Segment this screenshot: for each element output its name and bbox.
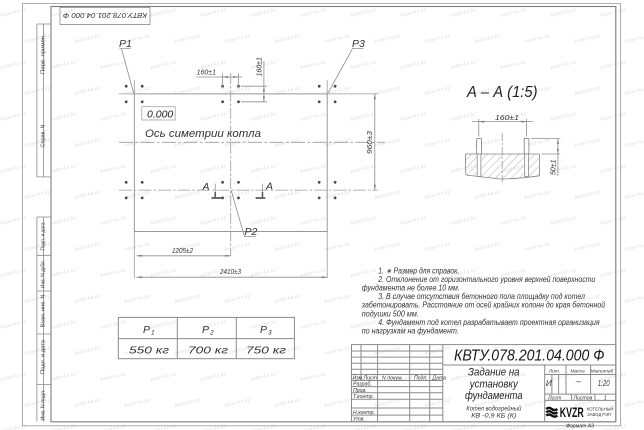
svg-text:КВТУ.078.201.04.000 Ф: КВТУ.078.201.04.000 Ф (63, 11, 147, 20)
svg-text:Взам. инв. N: Взам. инв. N (41, 294, 47, 327)
svg-text:Котел водогрейный: Котел водогрейный (466, 405, 521, 413)
svg-text:Разраб.: Разраб. (353, 382, 372, 388)
svg-text:1205±2: 1205±2 (172, 248, 193, 255)
svg-text:Подп. и дата: Подп. и дата (41, 222, 47, 250)
svg-text:ЗАВОД РЭП: ЗАВОД РЭП (587, 412, 611, 417)
svg-text:Лит.: Лит. (548, 368, 560, 374)
svg-text:A: A (265, 181, 273, 193)
svg-text:P2: P2 (245, 226, 258, 238)
svg-text:КВ -0,9 КБ (К): КВ -0,9 КБ (К) (471, 413, 516, 420)
svg-text:Утв.: Утв. (353, 417, 365, 423)
svg-text:P: P (260, 324, 267, 336)
svg-text:2: 2 (209, 330, 214, 337)
svg-text:1:20: 1:20 (598, 378, 610, 388)
svg-text:И: И (546, 379, 552, 388)
svg-text:КВТУ.078.201.04.000 Ф: КВТУ.078.201.04.000 Ф (454, 348, 605, 365)
svg-text:А – А (1:5): А – А (1:5) (466, 84, 537, 101)
svg-text:N докум.: N докум. (382, 376, 403, 382)
svg-text:50±1: 50±1 (551, 159, 558, 175)
svg-text:160±1: 160±1 (495, 115, 519, 122)
svg-text:P: P (143, 324, 150, 336)
svg-text:160±1: 160±1 (197, 70, 217, 77)
svg-text:Ось симетрии котла: Ось симетрии котла (145, 128, 261, 140)
svg-text:Справ. N: Справ. N (41, 124, 47, 147)
svg-text:–: – (575, 376, 581, 386)
svg-text:1: 1 (151, 330, 155, 337)
svg-text:A: A (202, 181, 210, 193)
svg-text:2410±3: 2410±3 (219, 269, 241, 276)
svg-text:550 кг: 550 кг (129, 345, 169, 357)
svg-text:KVZR: KVZR (560, 404, 584, 420)
svg-text:по нагрузкам на фундамент.: по нагрузкам на фундамент. (362, 326, 459, 335)
svg-text:Формат А3: Формат А3 (566, 424, 595, 430)
svg-text:КОТЕЛЬНЫЙ: КОТЕЛЬНЫЙ (587, 407, 614, 412)
svg-text:700 кг: 700 кг (188, 345, 228, 357)
svg-text:Т.контр.: Т.контр. (353, 394, 374, 400)
svg-text:P: P (202, 324, 209, 336)
svg-text:Инв. N подл.: Инв. N подл. (41, 390, 47, 421)
svg-text:Подп.: Подп. (414, 376, 428, 382)
svg-text:фундамента: фундамента (465, 390, 523, 402)
svg-text:установку: установку (469, 378, 519, 390)
svg-text:750 кг: 750 кг (246, 345, 286, 357)
svg-text:Масса: Масса (571, 368, 586, 374)
svg-text:Дата: Дата (431, 376, 446, 382)
svg-text:Н.контр.: Н.контр. (353, 410, 375, 416)
svg-text:Перв. примен.: Перв. примен. (41, 34, 47, 74)
svg-text:Лист: Лист (547, 395, 562, 401)
svg-text:960±3: 960±3 (367, 131, 374, 154)
svg-text:Подп. и дата: Подп. и дата (41, 340, 47, 374)
svg-text:Инв. N дубл.: Инв. N дубл. (41, 260, 47, 288)
svg-text:160±1: 160±1 (257, 57, 264, 77)
svg-text:3: 3 (268, 330, 272, 337)
svg-text:Задание на: Задание на (468, 367, 520, 379)
svg-text:Пров.: Пров. (353, 388, 367, 394)
svg-text:0.000: 0.000 (147, 108, 173, 120)
svg-text:Листов: Листов (573, 395, 593, 401)
svg-text:Масштаб: Масштаб (591, 368, 614, 374)
svg-text:1: 1 (604, 395, 607, 401)
